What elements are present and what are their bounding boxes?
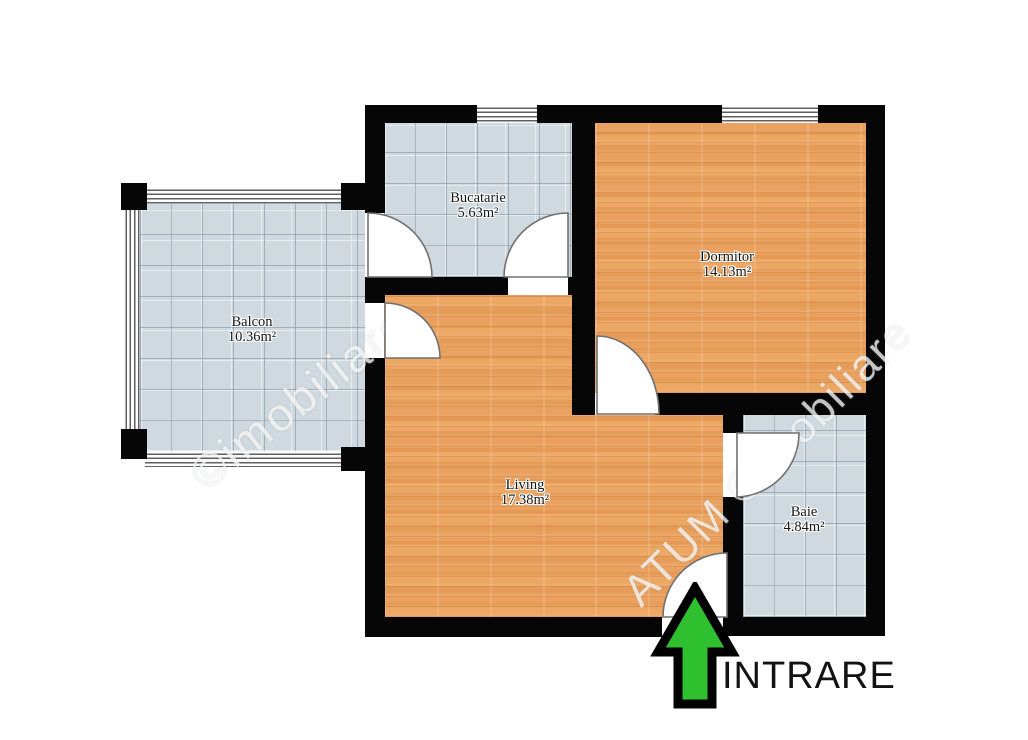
room-area: 10.36m²: [228, 330, 276, 345]
room-label-balcon: Balcon 10.36m²: [228, 315, 276, 345]
room-area: 4.84m²: [783, 520, 824, 535]
wall-bedroom-bottom: [655, 393, 866, 415]
wall-bottom-living: [365, 617, 662, 637]
balcony-rail-top: [145, 187, 343, 203]
balcony-post-top-right: [341, 183, 367, 210]
wall-bathroom-left-stub: [723, 413, 743, 433]
entrance-label: INTRARE: [722, 656, 896, 696]
living-floor: [384, 295, 595, 617]
wall-left-upper: [365, 105, 385, 213]
balcony-post-bottom-right: [341, 447, 369, 471]
wall-bottom-bathroom: [727, 617, 885, 636]
room-name: Living: [501, 478, 549, 493]
balcony-post-bottom-left: [121, 429, 147, 459]
room-name: Baie: [783, 505, 824, 520]
room-area: 17.38m²: [501, 493, 549, 508]
room-area: 14.13m²: [700, 265, 754, 280]
wall-right: [866, 105, 885, 636]
balcony-rail-bottom: [145, 451, 343, 467]
room-label-living: Living 17.38m²: [501, 478, 549, 508]
bedroom-window: [722, 105, 818, 123]
balcony-rail-left: [123, 210, 140, 433]
room-label-dormitor: Dormitor 14.13m²: [700, 250, 754, 280]
room-area: 5.63m²: [450, 206, 506, 221]
kitchen-window: [477, 105, 537, 123]
room-label-baie: Baie 4.84m²: [783, 505, 824, 535]
floor-plan: ©imobiliare ATUM ©imobiliare Bucatarie 5…: [0, 0, 1028, 740]
room-label-bucatarie: Bucatarie 5.63m²: [450, 191, 506, 221]
wall-left-lower: [365, 358, 385, 637]
balcony-post-top-left: [121, 183, 147, 210]
room-name: Dormitor: [700, 250, 754, 265]
wall-kitchen-bottom-1: [365, 277, 508, 295]
wall-top-2: [537, 105, 722, 123]
wall-kitchen-bedroom-divider: [572, 105, 595, 415]
room-name: Bucatarie: [450, 191, 506, 206]
room-name: Balcon: [228, 315, 276, 330]
